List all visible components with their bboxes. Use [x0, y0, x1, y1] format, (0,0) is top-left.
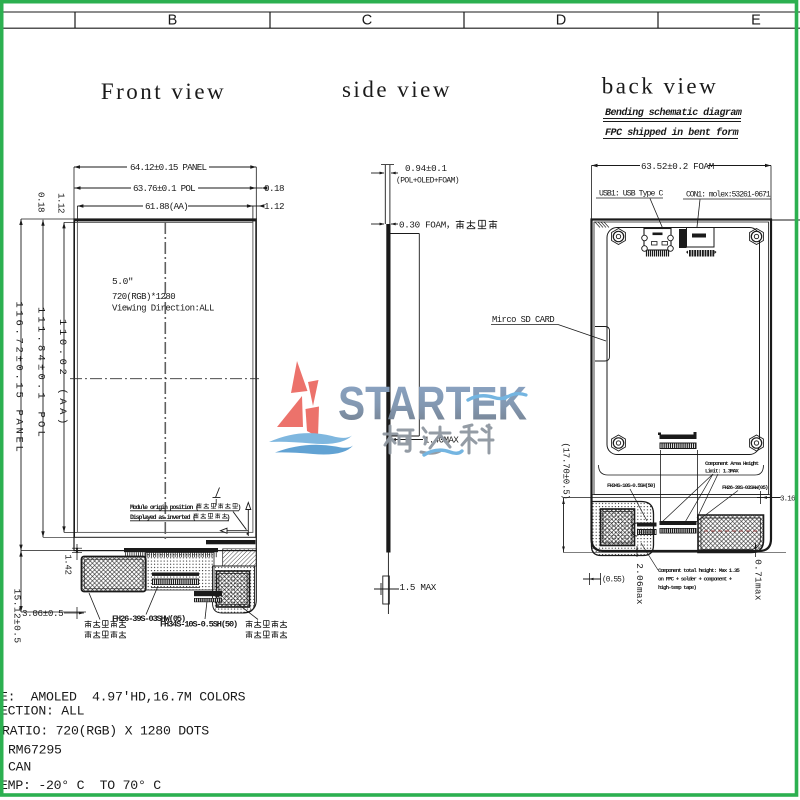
svg-text:RM67295: RM67295	[8, 743, 62, 758]
svg-text:Viewing Direction:ALL: Viewing Direction:ALL	[112, 304, 214, 314]
svg-text:Module origin position (: Module origin position (	[130, 504, 198, 511]
svg-text:): )	[238, 504, 242, 511]
svg-text:high-temp tape): high-temp tape)	[658, 584, 696, 591]
svg-text:1.5 MAX: 1.5 MAX	[400, 582, 437, 593]
svg-text:Displayed as inverted (: Displayed as inverted (	[130, 514, 195, 521]
svg-text:Mirco SD CARD: Mirco SD CARD	[492, 315, 554, 325]
svg-text:1.12: 1.12	[264, 201, 284, 212]
svg-text:0.71max: 0.71max	[753, 559, 764, 601]
svg-text:15.12±0.5: 15.12±0.5	[12, 589, 23, 644]
svg-text:EMP: -20° C TO 70° C: EMP: -20° C TO 70° C	[0, 778, 161, 793]
svg-text:Front view: Front view	[101, 79, 226, 104]
svg-text:ECTION: ALL: ECTION: ALL	[0, 704, 85, 719]
svg-text:Component total height: Max 1.: Component total height: Max 1.35	[658, 567, 740, 574]
svg-text:E: E	[751, 13, 761, 29]
svg-text:110.02 (AA): 110.02 (AA)	[56, 319, 68, 428]
svg-text:D: D	[556, 13, 566, 29]
svg-text:FPC shipped in bent form: FPC shipped in bent form	[605, 127, 739, 139]
svg-text:Bending schematic diagram: Bending schematic diagram	[605, 107, 742, 119]
svg-text:2.06max: 2.06max	[634, 563, 645, 605]
svg-text:0.18: 0.18	[264, 183, 284, 194]
svg-text:61.88(AA): 61.88(AA)	[145, 201, 188, 212]
svg-text:63.52±0.2 FOAM: 63.52±0.2 FOAM	[641, 161, 714, 172]
svg-text:111.84±0.1 POL: 111.84±0.1 POL	[35, 307, 47, 440]
svg-text:RATIO: 720(RGB) X 1280 DOTS: RATIO: 720(RGB) X 1280 DOTS	[2, 724, 209, 739]
svg-text:): )	[227, 514, 231, 521]
svg-text:1.12: 1.12	[56, 193, 67, 213]
svg-text:CAN: CAN	[8, 760, 31, 775]
svg-text:720(RGB)*1280: 720(RGB)*1280	[112, 292, 175, 302]
svg-text:116.72±0.15 PANEL: 116.72±0.15 PANEL	[13, 301, 25, 454]
svg-text:63.76±0.1 POL: 63.76±0.1 POL	[133, 183, 195, 194]
svg-text:side view: side view	[342, 77, 452, 102]
svg-text:B: B	[168, 13, 178, 29]
svg-text:Limit: 1.3MAX: Limit: 1.3MAX	[705, 468, 739, 475]
svg-text:C: C	[362, 13, 372, 29]
svg-text:3.06±0.5: 3.06±0.5	[22, 608, 63, 619]
svg-text:0.18: 0.18	[36, 192, 47, 212]
svg-text:1.42: 1.42	[63, 554, 73, 574]
svg-text:CON1: molex:53261-0671: CON1: molex:53261-0671	[686, 191, 771, 200]
svg-text:on FPC + solder + component +: on FPC + solder + component +	[658, 576, 733, 583]
svg-text:3.16: 3.16	[780, 496, 796, 504]
svg-text:STARTEK: STARTEK	[338, 377, 527, 430]
svg-text:0.30 FOAM，: 0.30 FOAM，	[399, 220, 455, 231]
svg-text:E: AMOLED 4.97'HD,16.7M COLO: E: AMOLED 4.97'HD,16.7M COLORS	[0, 690, 246, 705]
svg-text:(17.70±0.5): (17.70±0.5)	[561, 442, 571, 499]
svg-text:(POL+OLED+FOAM): (POL+OLED+FOAM)	[396, 177, 459, 186]
svg-text:FH34S-10S-0.5SH(50): FH34S-10S-0.5SH(50)	[160, 620, 237, 630]
svg-text:FH26-39S-03SHW(05): FH26-39S-03SHW(05)	[722, 484, 768, 491]
svg-text:(0.55): (0.55)	[602, 577, 625, 585]
svg-text:5.0": 5.0"	[112, 276, 133, 287]
svg-text:back view: back view	[602, 74, 718, 99]
svg-text:USB1: USB Type C: USB1: USB Type C	[599, 190, 663, 199]
svg-text:64.12±0.15 PANEL: 64.12±0.15 PANEL	[130, 162, 206, 173]
svg-text:FH34S-10S-0.5SH(50): FH34S-10S-0.5SH(50)	[607, 482, 656, 489]
svg-text:Component Area Height: Component Area Height	[705, 460, 759, 467]
svg-text:0.94±0.1: 0.94±0.1	[405, 163, 447, 174]
